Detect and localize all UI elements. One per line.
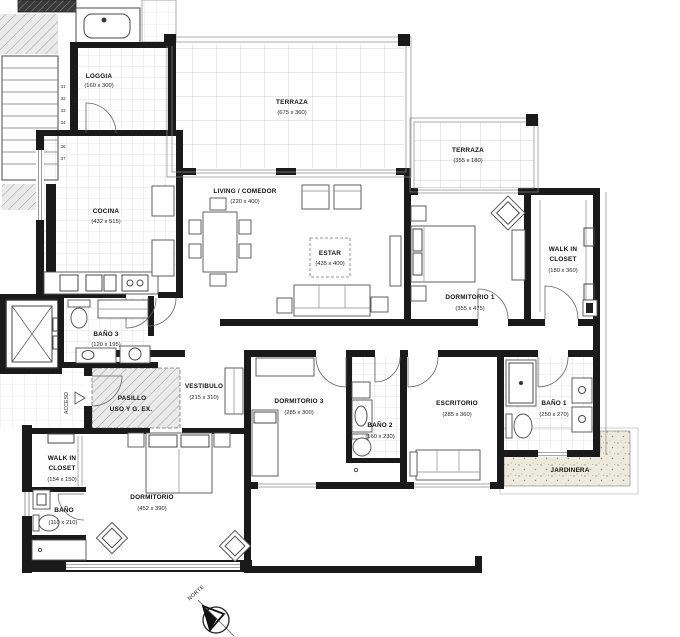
fridge (152, 240, 174, 276)
terraza-main-dims: (675 x 360) (277, 110, 306, 116)
nightstand (411, 206, 426, 221)
stair-step-number: 33 (60, 108, 66, 113)
terraza-small-floor (414, 122, 534, 188)
walkin2-label-1: WALK IN (48, 455, 77, 462)
terraza-main-label: TERRAZA (276, 99, 308, 106)
estar-dims: (435 x 400) (315, 261, 344, 267)
kitchen-counter (44, 272, 158, 294)
bano-ppal-dims: (110 x 210) (49, 520, 78, 526)
living-label: LIVING / COMEDOR (213, 188, 276, 195)
bano1-dims: (250 x 270) (539, 412, 568, 418)
elevator (0, 294, 62, 374)
window (258, 482, 316, 489)
window (36, 150, 44, 220)
stair-step-number: 36 (60, 144, 66, 149)
column-post (398, 34, 410, 46)
bed-dorm1 (411, 226, 475, 282)
window (66, 562, 240, 570)
floor-plan: 31 32 33 34 35 36 37 (0, 0, 680, 637)
loggia-floor (78, 48, 168, 130)
bed-dorm-ppal (146, 433, 212, 493)
estar-label: ESTAR (319, 250, 341, 257)
desk-dorm3 (256, 358, 314, 376)
kitchen-cabinet (152, 186, 174, 216)
stair-step-number: 31 (60, 84, 66, 89)
sink-drain (102, 18, 107, 23)
cocina-label: COCINA (93, 208, 120, 215)
bano2-dims: (160 x 230) (365, 434, 394, 440)
vestibulo-wardrobe (225, 368, 243, 414)
window (418, 188, 518, 195)
acceso-label: ACCESO (64, 392, 70, 414)
window (414, 482, 490, 489)
column-post (164, 34, 176, 46)
walkin2-dims: (154 x 150) (47, 477, 76, 483)
dresser (512, 230, 525, 280)
bano3-dims: (120 x 195) (91, 342, 120, 348)
stair-step-number: 37 (60, 156, 66, 161)
living-dims: (220 x 400) (230, 199, 259, 205)
exterior-corridor-floor (0, 368, 84, 428)
walkin1-dims: (180 x 360) (548, 268, 577, 274)
side-table (371, 297, 388, 312)
jardinera-label: JARDINERA (550, 467, 589, 474)
loggia-dims: (160 x 300) (84, 83, 113, 89)
accent-chair (491, 196, 525, 230)
service-hatch-area (0, 14, 58, 54)
terraza-main-floor (174, 44, 404, 170)
bano1-label: BAÑO 1 (541, 398, 567, 407)
window (196, 168, 276, 175)
north-compass: NORTE (187, 584, 234, 636)
dormitorio-ppal-dims: (452 x 390) (137, 506, 166, 512)
daybed-escritorio (410, 450, 480, 480)
door-dormitorio3 (316, 357, 346, 387)
dormitorio-ppal-label: DORMITORIO (130, 494, 173, 501)
vestibulo-label: VESTIBULO (185, 383, 223, 390)
dormitorio1-label: DORMITORIO 1 (445, 294, 494, 301)
walkin2-label-2: CLOSET (48, 465, 75, 472)
nightstand (214, 433, 230, 447)
walkin1-label-2: CLOSET (549, 256, 576, 263)
bano3-label: BAÑO 3 (93, 329, 119, 338)
stair-step-number: 34 (60, 120, 66, 125)
pasillo-label-2: USO Y G. EX. (110, 406, 153, 413)
column-post (526, 114, 538, 126)
vestibulo-dims: (215 x 310) (189, 395, 218, 401)
window (296, 168, 396, 175)
nightstand (128, 433, 144, 447)
bed-dorm3 (252, 410, 278, 476)
nightstand (411, 286, 426, 301)
dark-duct-band (18, 0, 76, 12)
bano-ppal-label: BAÑO (54, 505, 74, 514)
loggia-label: LOGGIA (86, 73, 113, 80)
service-sink (84, 14, 130, 38)
window (22, 492, 32, 516)
cocina-dims: (432 x 515) (91, 219, 120, 225)
accent-chair (96, 522, 127, 553)
tv-unit (390, 236, 401, 286)
dormitorio3-dims: (285 x 300) (284, 410, 313, 416)
terraza-small-dims: (355 x 180) (453, 158, 482, 164)
dormitorio1-dims: (355 x 475) (455, 306, 484, 312)
bano2-label: BAÑO 2 (367, 420, 393, 429)
escritorio-dims: (285 x 360) (442, 412, 471, 418)
door-escritorio (408, 357, 438, 387)
escritorio-label: ESCRITORIO (436, 400, 478, 407)
side-table (277, 298, 292, 313)
dormitorio3-label: DORMITORIO 3 (274, 398, 323, 405)
floor-fills (0, 44, 638, 494)
armchairs (302, 185, 361, 209)
walkin1-label-1: WALK IN (549, 246, 578, 253)
terraza-small-label: TERRAZA (452, 147, 484, 154)
estar-ceiling-dash (310, 238, 350, 277)
dining-set (189, 198, 251, 286)
stair-step-number: 32 (60, 96, 66, 101)
door-walkin1 (545, 286, 578, 319)
norte-label: NORTE (187, 584, 206, 602)
sofa (294, 285, 370, 316)
window (538, 450, 567, 457)
pasillo-label-1: PASILLO (118, 395, 147, 402)
